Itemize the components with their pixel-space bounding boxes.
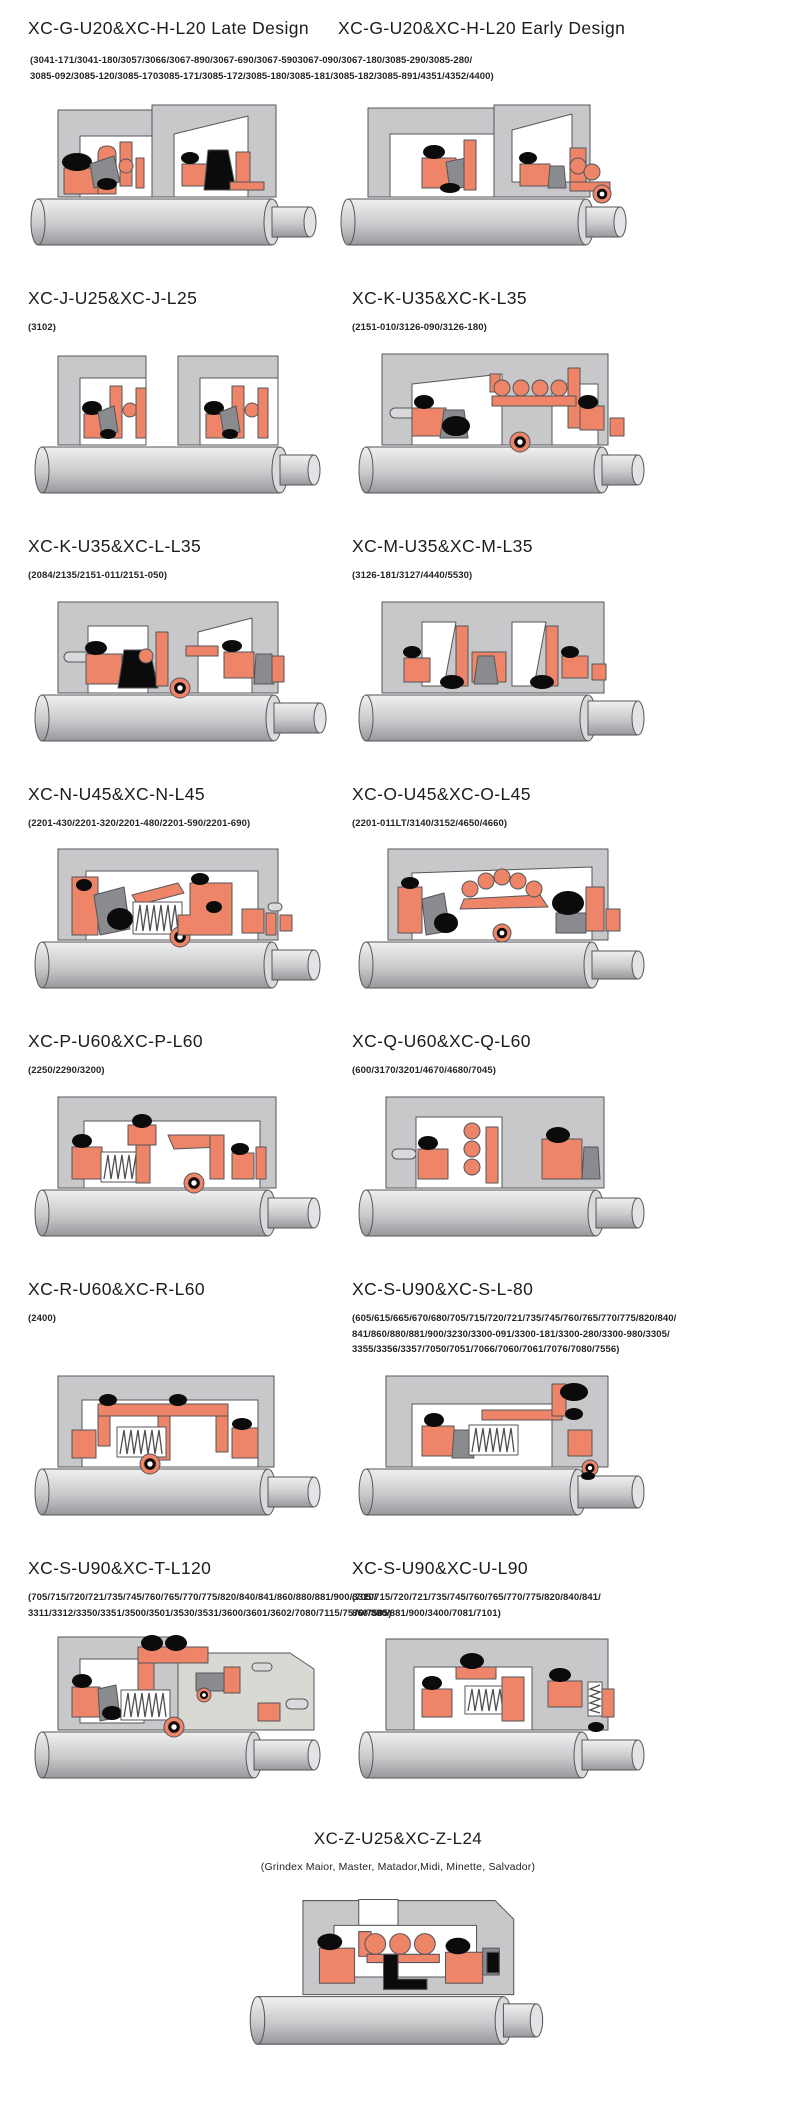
diagram-holder (0, 1891, 796, 2061)
diagram-holder (24, 100, 334, 258)
seal-cross-section-diagram (352, 1633, 652, 1791)
section-title: XC-K-U35&XC-K-L35 (352, 288, 786, 309)
section-title: XC-K-U35&XC-L-L35 (28, 536, 338, 557)
diagram-holder (28, 831, 338, 1001)
part-numbers: (2151-010/3126-090/3126-180) (352, 320, 786, 336)
part-numbers-g-series: (3041-171/3041-180/3057/3066/3067-890/30… (0, 39, 796, 84)
catalog-section: XC-K-U35&XC-L-L35 (2084/2135/2151-011/21… (28, 536, 338, 754)
diagram-holder (28, 336, 338, 506)
seal-cross-section-diagram (28, 1091, 328, 1249)
part-numbers: (2084/2135/2151-011/2151-050) (28, 568, 338, 584)
seal-cross-section-diagram (352, 348, 652, 506)
section-title: XC-S-U90&XC-T-L120 (28, 1558, 338, 1579)
diagram-holder (28, 1621, 338, 1791)
part-numbers: (3102) (28, 320, 338, 336)
catalog-section: XC-S-U90&XC-S-L-80 (605/615/665/670/680/… (352, 1279, 786, 1528)
section-title-z: XC-Z-U25&XC-Z-L24 (0, 1829, 796, 1849)
catalog-section: XC-K-U35&XC-K-L35 (2151-010/3126-090/312… (352, 288, 786, 506)
catalog-section: XC-Q-U60&XC-Q-L60 (600/3170/3201/4670/46… (352, 1031, 786, 1249)
header-title-row: XC-G-U20&XC-H-L20 Late Design XC-G-U20&X… (0, 6, 796, 39)
catalog-section: XC-O-U45&XC-O-L45 (2201-011LT/3140/3152/… (352, 784, 786, 1002)
section-title: XC-S-U90&XC-S-L-80 (352, 1279, 786, 1300)
catalog-section: XC-S-U90&XC-U-L90 (705/715/720/721/735/7… (352, 1558, 786, 1791)
diagram-holder (352, 1079, 786, 1249)
section-title-g-early-design: XC-G-U20&XC-H-L20 Early Design (338, 18, 786, 39)
section-title: XC-Q-U60&XC-Q-L60 (352, 1031, 786, 1052)
diagram-holder (334, 100, 786, 258)
diagram-holder (352, 831, 786, 1001)
section-title-g-late-design: XC-G-U20&XC-H-L20 Late Design (28, 18, 338, 39)
catalog-section: XC-M-U35&XC-M-L35 (3126-181/3127/4440/55… (352, 536, 786, 754)
seal-cross-section-diagram (243, 1891, 553, 2061)
seal-cross-section-diagram (352, 1091, 652, 1249)
seal-cross-section-diagram (28, 596, 328, 754)
section-title: XC-N-U45&XC-N-L45 (28, 784, 338, 805)
part-numbers: (2400) (28, 1311, 338, 1327)
seal-cross-section-diagram (352, 1370, 652, 1528)
part-numbers: (2201-011LT/3140/3152/4650/4660) (352, 816, 786, 832)
part-numbers: (705/715/720/721/735/745/760/765/770/775… (28, 1590, 338, 1621)
section-title: XC-J-U25&XC-J-L25 (28, 288, 338, 309)
diagram-holder (28, 584, 338, 754)
part-numbers: (3126-181/3127/4440/5530) (352, 568, 786, 584)
section-title: XC-P-U60&XC-P-L60 (28, 1031, 338, 1052)
catalog-grid: XC-J-U25&XC-J-L25 (3102) XC-K-U35&XC-K-L… (0, 258, 796, 1791)
catalog-section: XC-R-U60&XC-R-L60 (2400) (28, 1279, 338, 1528)
seal-cross-section-diagram (352, 596, 652, 754)
seal-cross-section-diagram (28, 843, 328, 1001)
part-numbers: (2201-430/2201-320/2201-480/2201-590/220… (28, 816, 338, 832)
diagram-holder (352, 584, 786, 754)
catalog-section: XC-J-U25&XC-J-L25 (3102) (28, 288, 338, 506)
catalog-section: XC-S-U90&XC-T-L120 (705/715/720/721/735/… (28, 1558, 338, 1791)
diagram-holder (28, 1079, 338, 1249)
seal-cross-section-diagram (28, 1370, 328, 1528)
part-numbers: (705/715/720/721/735/745/760/765/770/775… (352, 1590, 786, 1621)
section-title: XC-S-U90&XC-U-L90 (352, 1558, 786, 1579)
catalog-section: XC-N-U45&XC-N-L45 (2201-430/2201-320/220… (28, 784, 338, 1002)
part-numbers: (600/3170/3201/4670/4680/7045) (352, 1063, 786, 1079)
seal-catalog-page: XC-G-U20&XC-H-L20 Late Design XC-G-U20&X… (0, 0, 796, 2101)
part-numbers: (605/615/665/670/680/705/715/720/721/735… (352, 1311, 786, 1358)
pump-model-names: (Grindex Maior, Master, Matador,Midi, Mi… (0, 1859, 796, 1876)
section-title: XC-O-U45&XC-O-L45 (352, 784, 786, 805)
seal-cross-section-diagram (28, 1633, 328, 1791)
seal-cross-section-diagram (24, 100, 324, 258)
header-diagram-row (0, 84, 796, 258)
seal-cross-section-diagram (334, 100, 634, 258)
seal-cross-section-diagram (28, 348, 328, 506)
diagram-holder (352, 1358, 786, 1528)
diagram-holder (352, 1621, 786, 1791)
diagram-holder (352, 336, 786, 506)
catalog-section: XC-P-U60&XC-P-L60 (2250/2290/3200) (28, 1031, 338, 1249)
section-title: XC-M-U35&XC-M-L35 (352, 536, 786, 557)
diagram-holder (28, 1358, 338, 1528)
seal-cross-section-diagram (352, 843, 652, 1001)
section-title: XC-R-U60&XC-R-L60 (28, 1279, 338, 1300)
catalog-section-z: XC-Z-U25&XC-Z-L24 (Grindex Maior, Master… (0, 1829, 796, 2060)
part-numbers: (2250/2290/3200) (28, 1063, 338, 1079)
